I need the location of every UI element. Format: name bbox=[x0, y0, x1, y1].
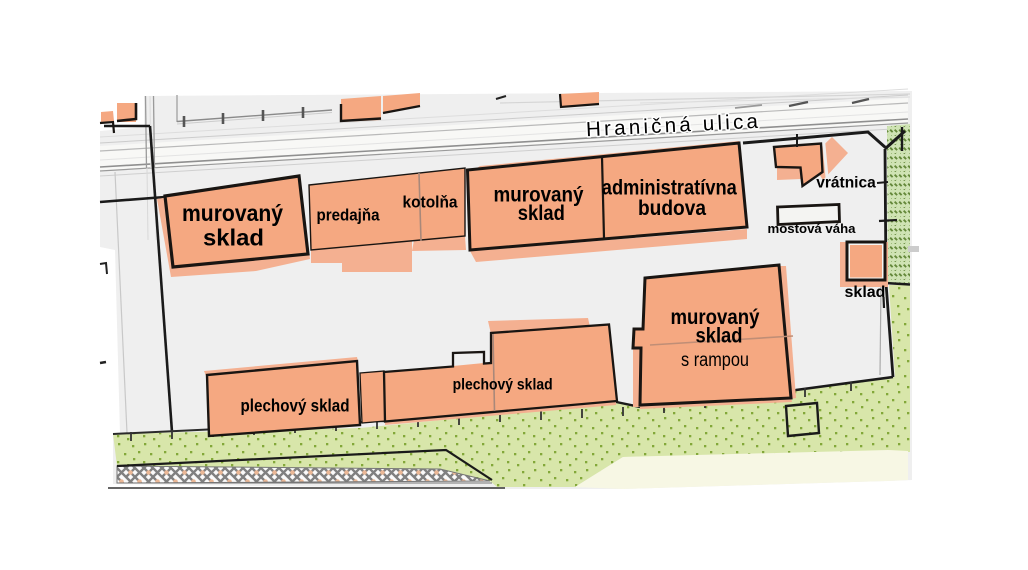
svg-text:plechový sklad: plechový sklad bbox=[453, 377, 553, 394]
svg-text:predajňa: predajňa bbox=[317, 206, 380, 225]
svg-text:plechový sklad: plechový sklad bbox=[241, 396, 350, 416]
svg-text:mostová váha: mostová váha bbox=[768, 221, 857, 236]
svg-text:budova: budova bbox=[638, 197, 706, 220]
svg-text:sklad: sklad bbox=[696, 325, 743, 348]
svg-text:s rampou: s rampou bbox=[681, 350, 749, 371]
svg-text:kotolňa: kotolňa bbox=[403, 193, 458, 212]
svg-text:vrátnica: vrátnica bbox=[816, 175, 876, 192]
svg-text:sklad: sklad bbox=[203, 225, 264, 251]
svg-text:sklad: sklad bbox=[845, 284, 886, 301]
svg-text:sklad: sklad bbox=[518, 202, 565, 225]
svg-text:murovaný: murovaný bbox=[182, 200, 283, 226]
